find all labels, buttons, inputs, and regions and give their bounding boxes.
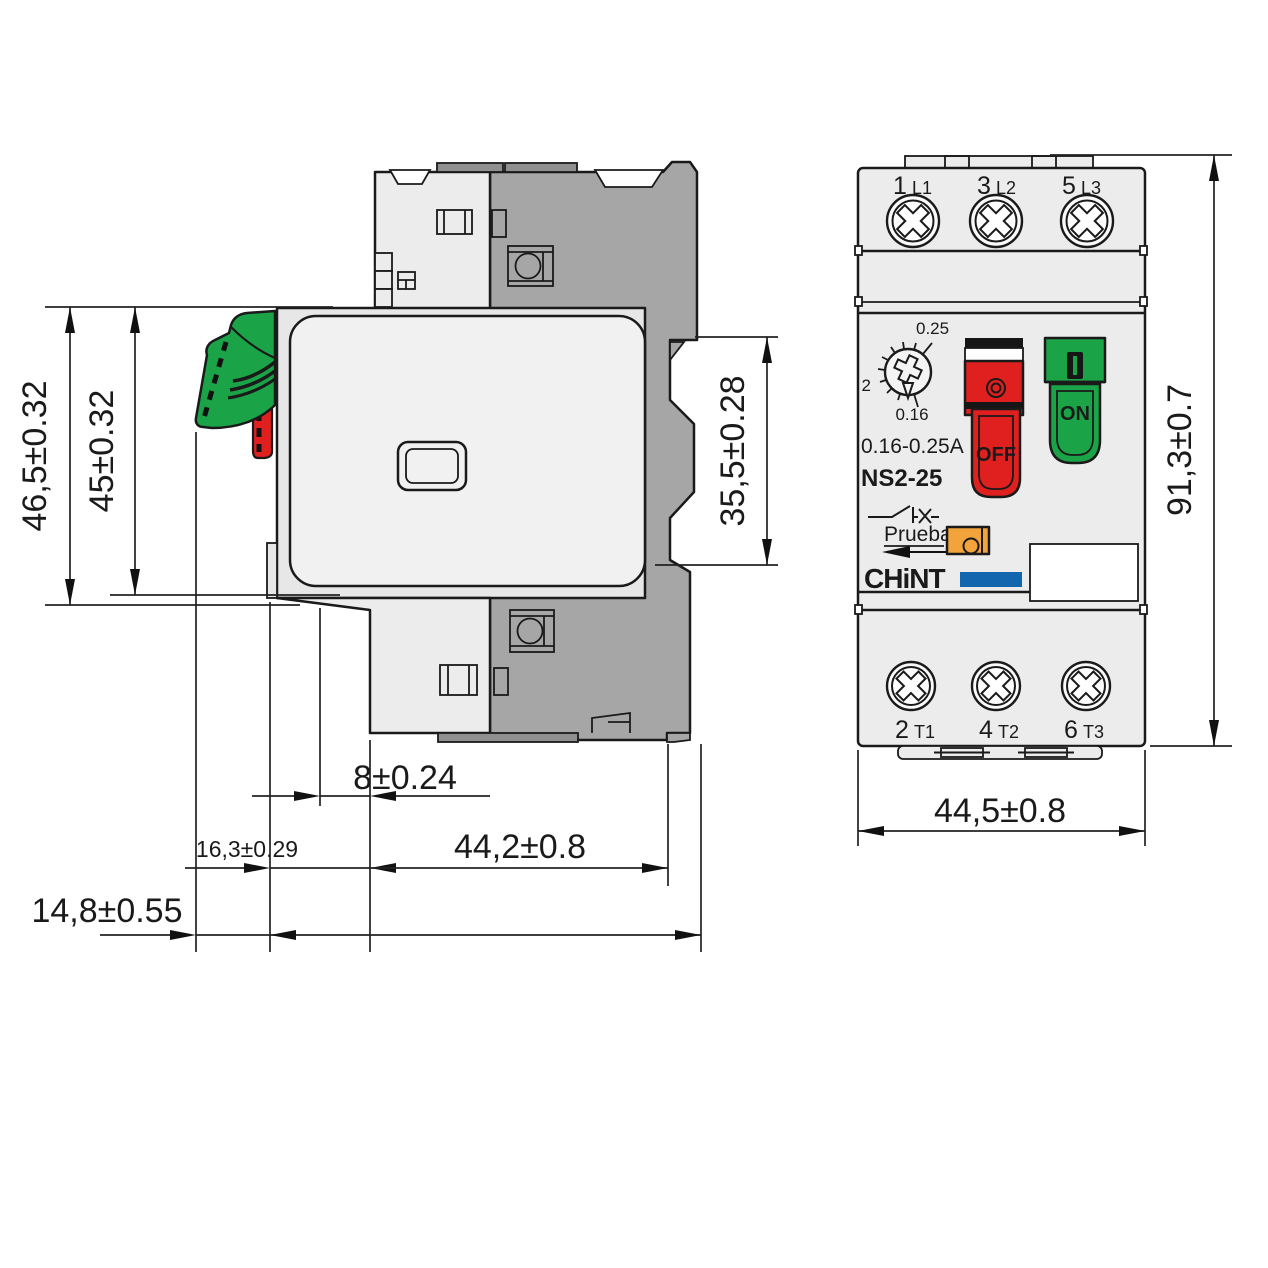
terminal-2-num: 2: [895, 716, 909, 744]
face-step: [267, 543, 277, 598]
bottom-tab-strip: [438, 733, 578, 742]
svg-text:35,5±0.28: 35,5±0.28: [714, 375, 752, 526]
dial-mid-label: 2: [862, 376, 871, 395]
terminal-screw-T1[interactable]: [887, 662, 935, 710]
on-button[interactable]: ON: [1045, 338, 1105, 463]
rear-slot: [492, 210, 506, 237]
din-hook: [670, 342, 684, 360]
side-view: [196, 162, 697, 742]
rating-text: 0.16-0.25A: [861, 435, 964, 458]
dial-min-label: 0.16: [895, 405, 928, 424]
edge-ladder: [375, 253, 392, 271]
test-label: Prueba: [884, 523, 952, 546]
top-notch-right: [595, 170, 663, 187]
brand-logo-bar: [960, 572, 1022, 587]
green-lever: [196, 311, 275, 428]
dim-step: 8±0.24: [252, 759, 490, 801]
terminal-6-num: 6: [1064, 716, 1078, 744]
face-cover: [290, 316, 645, 586]
terminal-3-label: L2: [996, 178, 1016, 198]
dim-rail-cutout: 35,5±0.28: [714, 337, 772, 565]
on-label: ON: [1060, 403, 1090, 425]
terminal-1-label: L1: [912, 178, 932, 198]
dim-lever-offset: 14,8±0.55: [31, 892, 270, 940]
dim-lever: 16,3±0.29: [185, 836, 370, 873]
terminal-4-label: T2: [998, 722, 1019, 742]
svg-text:16,3±0.29: 16,3±0.29: [196, 836, 298, 862]
front-top-strip: [905, 156, 1093, 168]
svg-text:44,2±0.8: 44,2±0.8: [454, 828, 586, 866]
svg-text:91,3±0.7: 91,3±0.7: [1161, 384, 1199, 516]
svg-text:46,5±0.32: 46,5±0.32: [16, 380, 54, 531]
terminal-screw-L1[interactable]: [887, 195, 939, 247]
terminal-3-num: 3: [977, 172, 991, 200]
off-button[interactable]: OFF: [965, 338, 1023, 497]
svg-text:14,8±0.55: 14,8±0.55: [31, 892, 182, 930]
terminal-screw-L3[interactable]: [1061, 195, 1113, 247]
lower-slot: [494, 668, 508, 695]
terminal-screw-T3[interactable]: [1062, 662, 1110, 710]
dim-height-inner: 45±0.32: [83, 307, 140, 595]
dial-max-label: 0.25: [916, 319, 949, 338]
terminal-4-num: 4: [979, 716, 993, 744]
svg-text:45±0.32: 45±0.32: [83, 390, 121, 513]
dim-front-height: 91,3±0.7: [1161, 155, 1219, 746]
off-label: OFF: [976, 444, 1016, 466]
upper-solenoid: [508, 246, 553, 286]
dim-front-width: 44,5±0.8: [858, 792, 1145, 836]
dim-body-depth: 44,2±0.8: [370, 828, 668, 873]
terminal-2-label: T1: [914, 722, 935, 742]
terminal-6-label: T3: [1083, 722, 1104, 742]
model-text: NS2-25: [861, 465, 942, 492]
technical-drawing-page: 1 L1 3 L2 5 L3 0.25 2 0.16: [0, 0, 1268, 1268]
top-tab-right: [505, 163, 577, 172]
terminal-5-label: L3: [1081, 178, 1101, 198]
dim-total-depth-line: [270, 930, 701, 940]
terminal-5-num: 5: [1062, 172, 1076, 200]
svg-text:44,5±0.8: 44,5±0.8: [934, 792, 1066, 830]
terminal-1-num: 1: [893, 172, 907, 200]
brand-logo-text: CHiNT: [864, 563, 945, 594]
label-window: [1030, 544, 1138, 601]
terminal-screw-L2[interactable]: [970, 195, 1022, 247]
dim-height-outer: 46,5±0.32: [16, 307, 75, 605]
technical-drawing: 1 L1 3 L2 5 L3 0.25 2 0.16: [0, 0, 1268, 1268]
front-view: 1 L1 3 L2 5 L3 0.25 2 0.16: [855, 156, 1147, 759]
terminal-screw-T2[interactable]: [972, 662, 1020, 710]
test-button[interactable]: [947, 527, 989, 554]
lower-solenoid: [510, 610, 554, 652]
svg-text:8±0.24: 8±0.24: [353, 759, 457, 797]
top-notch-left: [390, 170, 430, 184]
rear-bottom-step: [667, 733, 690, 742]
top-tab-left: [437, 163, 503, 172]
